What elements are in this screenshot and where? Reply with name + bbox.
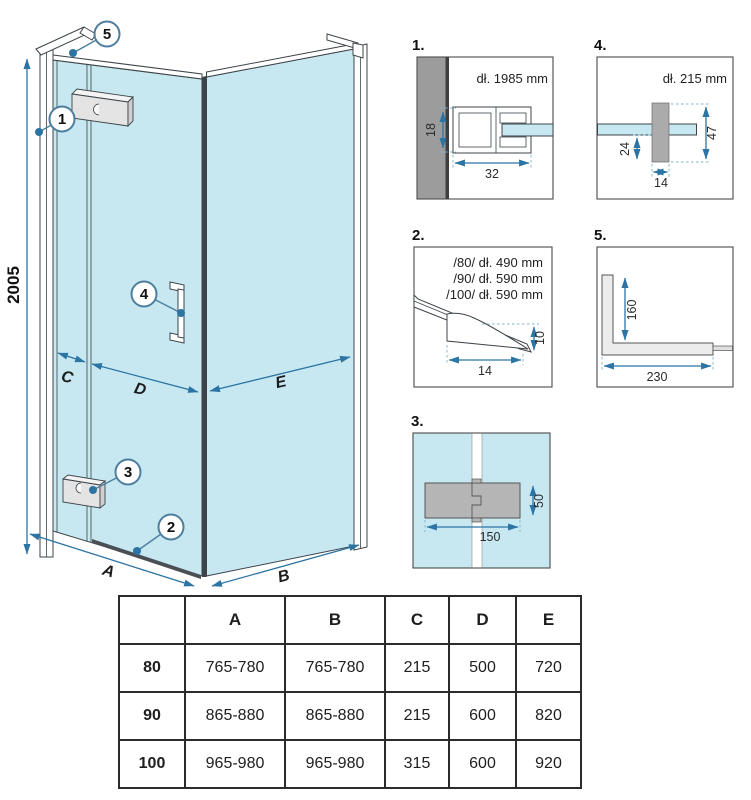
detail-box-3: 3. 50 150 — [411, 413, 550, 568]
value-cell: 965-980 — [185, 740, 285, 788]
value-cell: 865-880 — [285, 692, 385, 740]
corner-profile — [202, 76, 207, 577]
value-cell: 965-980 — [285, 740, 385, 788]
main-assembly-view: 2005 — [4, 22, 367, 587]
svg-text:18: 18 — [424, 123, 438, 137]
callout-2-number: 2 — [167, 519, 175, 536]
table-row-90: 90 865-880 865-880 215 600 820 — [119, 692, 581, 740]
dimension-height-label: 2005 — [4, 266, 23, 304]
value-cell: 865-880 — [185, 692, 285, 740]
detail-5-label: 5. — [594, 227, 607, 244]
table-header-row: A B C D E — [119, 596, 581, 644]
detail-4-label: 4. — [594, 37, 607, 54]
dimension-height-2005: 2005 — [4, 59, 27, 554]
detail-1-label: 1. — [412, 37, 425, 54]
table-header-a: A — [185, 596, 285, 644]
svg-text:14: 14 — [654, 176, 668, 190]
table-header-d: D — [449, 596, 516, 644]
detail-box-4: 4. dł. 215 mm 24 47 14 — [594, 37, 733, 199]
wall-profile-bar — [652, 103, 669, 162]
wall-edge-line — [446, 58, 450, 199]
svg-text:230: 230 — [647, 370, 668, 384]
value-cell: 765-780 — [285, 644, 385, 692]
dimension-table: A B C D E 80 765-780 765-780 215 500 720… — [118, 595, 582, 789]
hinge-bottom — [63, 475, 105, 508]
callout-5: 5 — [69, 22, 120, 58]
value-cell: 600 — [449, 740, 516, 788]
svg-text:10: 10 — [533, 331, 547, 345]
right-wall-profile — [354, 44, 367, 550]
size-cell: 80 — [119, 644, 185, 692]
detail-2-label: 2. — [412, 227, 425, 244]
value-cell: 600 — [449, 692, 516, 740]
right-glass-panel — [207, 49, 355, 576]
callout-3-number: 3 — [124, 464, 132, 481]
dimension-b-label: B — [276, 567, 292, 586]
detail-box-5: 5. 160 230 — [594, 227, 733, 387]
dimension-a-label: A — [99, 562, 116, 582]
svg-text:150: 150 — [480, 530, 501, 544]
table-header-b: B — [285, 596, 385, 644]
svg-text:160: 160 — [625, 300, 639, 321]
value-cell: 720 — [516, 644, 581, 692]
svg-text:32: 32 — [485, 167, 499, 181]
callout-5-number: 5 — [103, 26, 111, 43]
value-cell: 215 — [385, 644, 449, 692]
top-stabilizer-left — [36, 27, 96, 55]
shower-enclosure-spec-sheet: 2005 — [0, 0, 751, 800]
value-cell: 215 — [385, 692, 449, 740]
svg-text:50: 50 — [532, 494, 546, 508]
detail-2-size-100: /100/ dł. 590 mm — [446, 287, 543, 302]
technical-diagram: 2005 — [0, 0, 751, 592]
table-header-c: C — [385, 596, 449, 644]
callout-4-number: 4 — [140, 286, 149, 303]
table-header-e: E — [516, 596, 581, 644]
size-cell: 90 — [119, 692, 185, 740]
value-cell: 820 — [516, 692, 581, 740]
size-cell: 100 — [119, 740, 185, 788]
value-cell: 500 — [449, 644, 516, 692]
svg-text:24: 24 — [618, 142, 632, 156]
detail-2-size-80: /80/ dł. 490 mm — [453, 255, 543, 270]
table-header-size — [119, 596, 185, 644]
svg-text:14: 14 — [478, 364, 492, 378]
detail-2-size-90: /90/ dł. 590 mm — [453, 271, 543, 286]
callout-1-number: 1 — [58, 111, 66, 128]
glass-strip — [598, 124, 697, 135]
glass-strip — [502, 124, 553, 136]
value-cell: 315 — [385, 740, 449, 788]
detail-4-title: dł. 215 mm — [663, 71, 727, 86]
table-row-80: 80 765-780 765-780 215 500 720 — [119, 644, 581, 692]
value-cell: 765-780 — [185, 644, 285, 692]
detail-1-title: dł. 1985 mm — [476, 71, 548, 86]
detail-3-label: 3. — [411, 413, 424, 430]
detail-box-2: 2. /80/ dł. 490 mm /90/ dł. 590 mm /100/… — [412, 227, 552, 387]
detail-box-1: 1. dł. 1985 mm 18 32 — [412, 37, 553, 199]
hinge-plate — [425, 479, 520, 522]
glass-edge-line — [713, 346, 733, 351]
value-cell: 920 — [516, 740, 581, 788]
table-row-100: 100 965-980 965-980 315 600 920 — [119, 740, 581, 788]
svg-text:47: 47 — [705, 126, 719, 140]
